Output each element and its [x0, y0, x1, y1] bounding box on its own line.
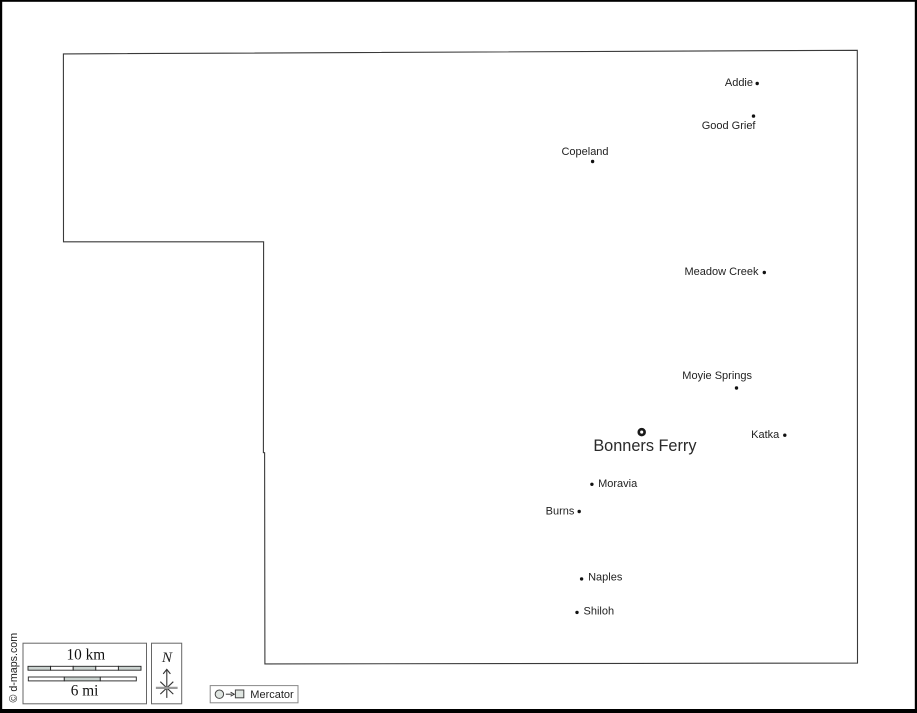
- svg-text:© d-maps.com: © d-maps.com: [8, 633, 20, 703]
- svg-text:Addie: Addie: [725, 77, 753, 89]
- svg-text:Burns: Burns: [546, 506, 575, 518]
- svg-text:Mercator: Mercator: [250, 689, 294, 701]
- svg-text:Bonners Ferry: Bonners Ferry: [593, 437, 697, 455]
- svg-text:Katka: Katka: [751, 429, 780, 441]
- svg-text:Meadow Creek: Meadow Creek: [685, 266, 759, 278]
- svg-text:Good Grief: Good Grief: [702, 120, 757, 132]
- svg-text:Moyie Springs: Moyie Springs: [682, 370, 752, 382]
- svg-text:6 mi: 6 mi: [71, 682, 99, 699]
- svg-text:Naples: Naples: [588, 571, 623, 583]
- svg-text:10 km: 10 km: [66, 647, 105, 664]
- svg-text:Moravia: Moravia: [598, 478, 638, 490]
- svg-text:N: N: [161, 649, 173, 666]
- svg-text:Copeland: Copeland: [561, 146, 608, 158]
- svg-text:Shiloh: Shiloh: [584, 606, 615, 618]
